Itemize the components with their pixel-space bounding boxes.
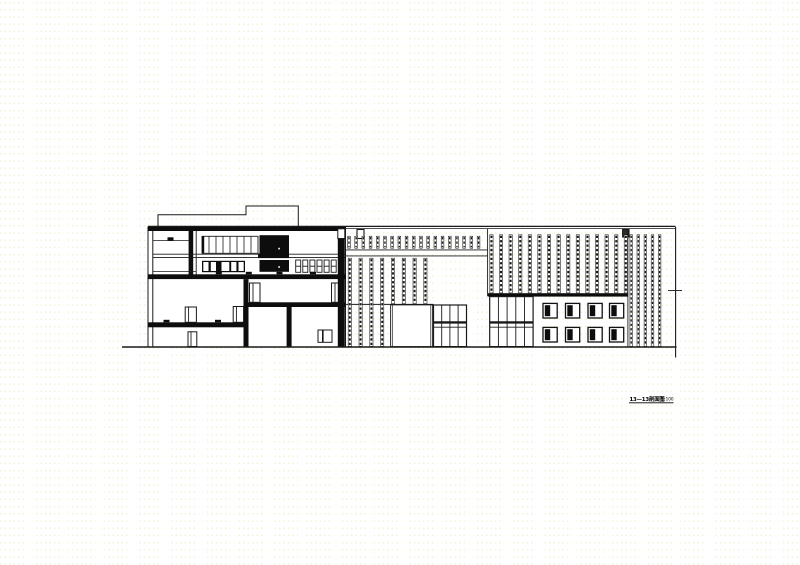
facade-window-dark-pane: [611, 329, 616, 340]
facade-window-dark-pane: [590, 305, 595, 316]
beam-block: [246, 272, 252, 275]
dark-opening-lower: [260, 260, 290, 272]
beam-block: [164, 320, 170, 323]
beam-block: [168, 237, 174, 240]
facade-window-dark-pane: [545, 329, 550, 340]
column: [287, 307, 292, 347]
storefront-glazing-right: [490, 297, 533, 347]
parapet-cap: [338, 229, 345, 239]
storefront-glazing-left: [434, 305, 467, 347]
elevation-drawing: 13—13剖面图 1:100: [0, 0, 800, 565]
beam-block: [215, 320, 221, 323]
sheet: 13—13剖面图 1:100: [0, 0, 800, 565]
ribbon-window-lower: [202, 261, 245, 272]
dot: [278, 248, 280, 250]
column: [244, 279, 249, 347]
section-left-wing: [148, 206, 346, 347]
facade-window-dark-pane: [590, 329, 595, 340]
parapet-step-outline: [158, 206, 298, 227]
facade-window-dark-pane: [611, 305, 616, 316]
scale-label: 1:100: [662, 397, 674, 402]
facade-window-dark-pane: [567, 329, 572, 340]
dark-opening-upper: [260, 235, 290, 253]
entrance-door: [391, 305, 433, 347]
small-basement-window: [318, 330, 332, 342]
ribbon-window-upper: [202, 236, 258, 253]
louver-strip: [359, 258, 362, 346]
louver-strip: [348, 258, 351, 346]
floor-slab-lower-right: [244, 302, 346, 307]
louver-strip: [381, 258, 384, 346]
facade-window-dark-pane: [567, 305, 572, 316]
beam-block: [277, 272, 283, 275]
louver-strip: [370, 258, 373, 346]
title-block: 13—13剖面图 1:100: [629, 395, 674, 403]
drawing-title: 13—13剖面图: [630, 395, 666, 403]
beam-block: [310, 272, 316, 275]
window-grid: [543, 303, 624, 342]
band-fill: [258, 254, 289, 259]
floor-slab: [148, 274, 346, 279]
facade-window-dark-pane: [545, 305, 550, 316]
beam-block: [216, 272, 222, 275]
party-wall: [338, 239, 345, 347]
floor-slab-lower-left: [148, 322, 244, 327]
dot: [278, 266, 280, 268]
roof-slab: [148, 227, 346, 231]
